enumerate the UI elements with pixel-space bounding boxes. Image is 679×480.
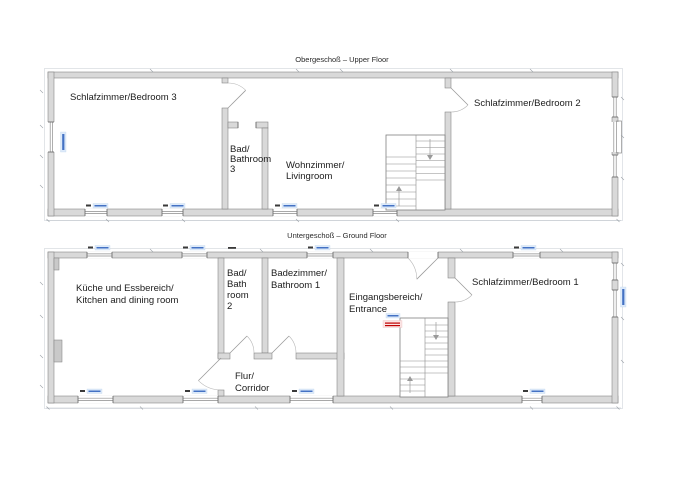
ground-pier-topleft (54, 258, 59, 270)
floor-plan-drawing: Obergeschoß – Upper Floor (0, 0, 679, 480)
ground-floor-title: Untergeschoß – Ground Floor (287, 231, 387, 240)
ground-window-tags (80, 246, 626, 394)
room-label-bedroom1: Schlafzimmer/Bedroom 1 (472, 277, 579, 288)
room-label-bedroom3: Schlafzimmer/Bedroom 3 (70, 92, 177, 103)
room-label-bedroom2: Schlafzimmer/Bedroom 2 (474, 98, 581, 109)
room-label-bathroom1-1: Badezimmer/ (271, 268, 327, 279)
room-label-kitchen-1: Küche und Essbereich/ (76, 283, 174, 294)
upper-windows-right (612, 97, 622, 177)
room-label-entrance-2: Entrance (349, 304, 387, 315)
upper-wall-bath3-top-left (228, 122, 238, 128)
room-label-corridor-2: Corridor (235, 383, 269, 394)
room-label-corridor-1: Flur/ (235, 371, 254, 382)
upper-door-bedroom2 (451, 88, 468, 112)
upper-wall-bedroom2 (445, 112, 451, 209)
ground-wall-bath-bottom-2 (254, 353, 272, 359)
ground-wall-bath1-entrance (337, 258, 344, 396)
upper-wall-bath3-right (262, 128, 268, 209)
ground-chimney-left (54, 340, 62, 362)
ground-windows-right (612, 263, 619, 317)
room-label-livingroom-2: Livingroom (286, 171, 333, 182)
upper-door-bedroom3 (228, 83, 246, 108)
room-label-bathroom2-1: Bad/ (227, 268, 247, 279)
room-label-bathroom1-2: Bathroom 1 (271, 280, 320, 291)
ground-wall-left (48, 252, 54, 403)
room-label-bathroom2-2: Bath (227, 279, 247, 290)
ground-wall-entrance-bedroom1 (448, 302, 455, 396)
ground-entrance-door-top (408, 252, 438, 280)
room-label-bathroom3-3: 3 (230, 164, 235, 175)
upper-wall-bath3-top-right (256, 122, 268, 128)
upper-wall-bedroom3 (222, 108, 228, 209)
ground-outline (45, 249, 623, 409)
upper-window-left (48, 122, 55, 152)
ground-stairs-area-tag (383, 314, 402, 328)
ground-wall-kitchen (218, 258, 224, 358)
ground-wall-bath2-bath1 (262, 258, 268, 353)
room-label-entrance-1: Eingangsbereich/ (349, 292, 423, 303)
floor-plan-page: Obergeschoß – Upper Floor (0, 0, 679, 480)
room-label-bathroom3-2: Bathroom (230, 154, 271, 165)
upper-wall-bedroom3-stub (222, 78, 228, 83)
ground-staircase (400, 318, 448, 397)
ground-wall-bath-bottom-1 (218, 353, 230, 359)
upper-staircase (386, 135, 445, 210)
ground-dimension-ticks (40, 249, 624, 410)
ground-door-bathroom2 (230, 336, 254, 353)
upper-wall-top (48, 72, 618, 78)
ground-wall-corridor-stub (218, 390, 224, 396)
room-label-kitchen-2: Kitchen and dining room (76, 295, 179, 306)
ground-door-corridor (198, 358, 221, 390)
ground-door-bedroom1 (455, 278, 472, 302)
room-label-livingroom-1: Wohnzimmer/ (286, 160, 345, 171)
room-label-bathroom2-3: room (227, 290, 249, 301)
ground-floor-plan: Küche und Essbereich/ Kitchen and dining… (40, 246, 626, 410)
ground-wall-entrance-stub (448, 258, 455, 278)
upper-floor-title: Obergeschoß – Upper Floor (295, 55, 389, 64)
upper-wall-bottom (48, 209, 618, 216)
upper-door-bathroom3 (238, 122, 256, 128)
upper-wall-bedroom2-stub (445, 78, 451, 88)
ground-door-bathroom1 (272, 336, 296, 353)
upper-floor-plan: Schlafzimmer/Bedroom 3 Bad/ Bathroom 3 W… (40, 69, 624, 223)
room-label-bathroom2-4: 2 (227, 301, 232, 312)
